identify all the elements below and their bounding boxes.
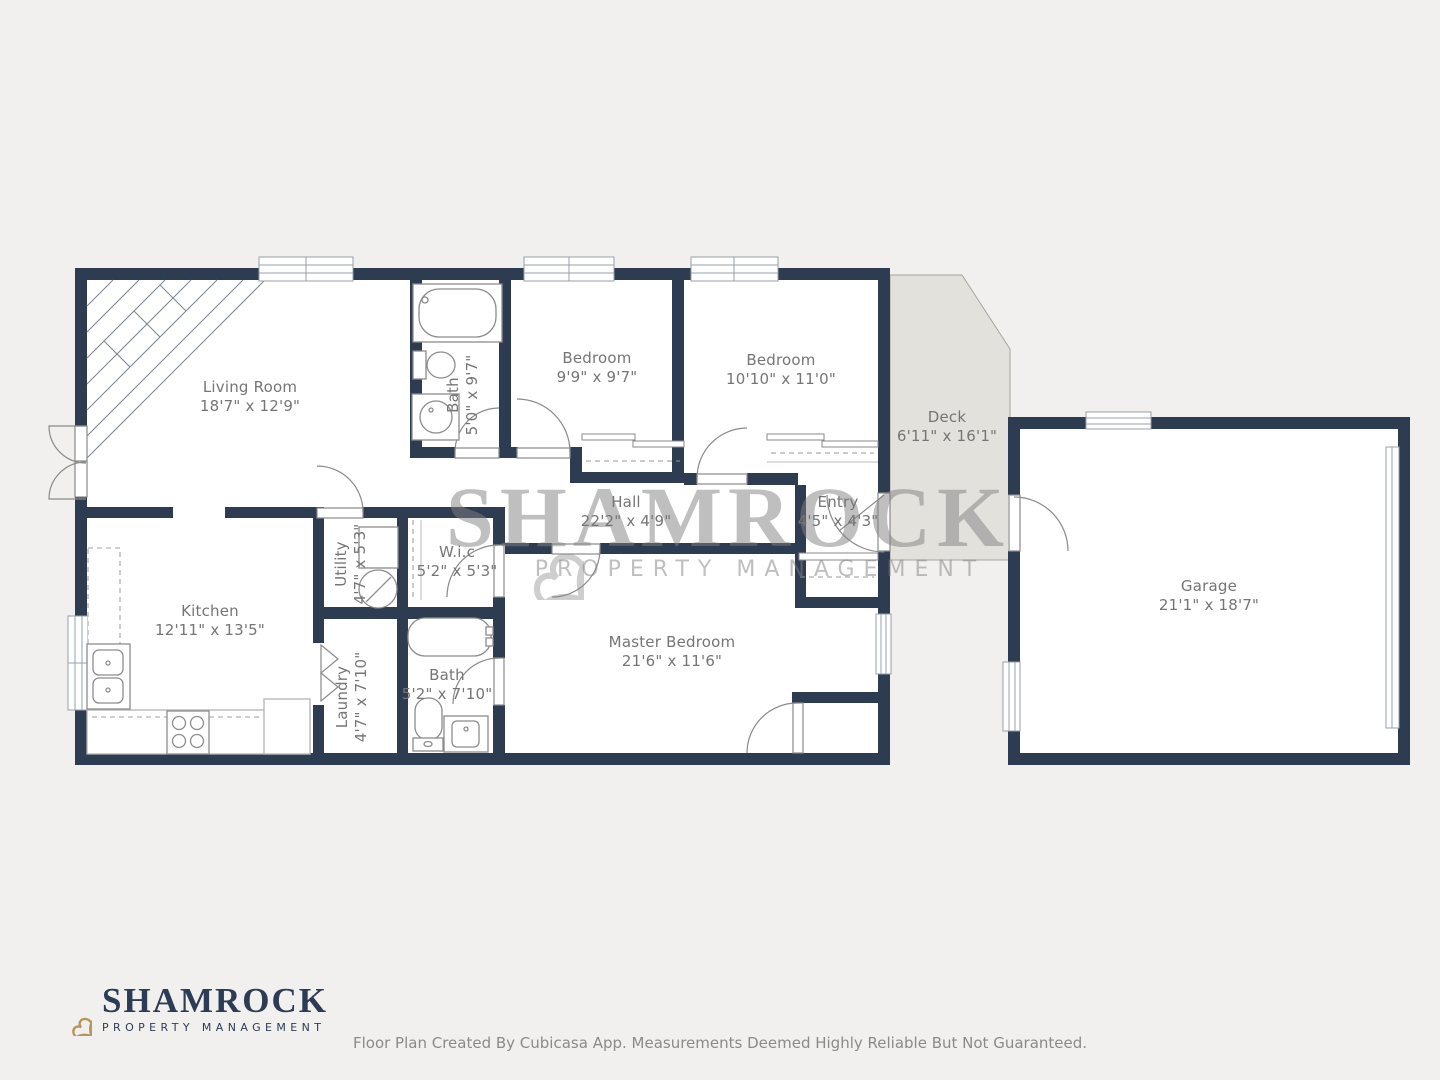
front-double-door <box>49 426 87 499</box>
room-name: Master Bedroom <box>609 633 736 652</box>
room-dims: 9'9" x 9'7" <box>557 368 638 387</box>
company-logo: SHAMROCK PROPERTY MANAGEMENT <box>40 982 328 1036</box>
room-label-master-bedroom: Master Bedroom 21'6" x 11'6" <box>609 633 736 671</box>
garage-door <box>1386 447 1399 728</box>
room-dims: 10'10" x 11'0" <box>726 370 836 389</box>
kitchen-sink <box>87 644 130 709</box>
room-dims: 5'2" x 5'3" <box>417 562 498 581</box>
room-label-wic: W.i.c 5'2" x 5'3" <box>417 543 498 581</box>
room-label-deck: Deck 6'11" x 16'1" <box>897 408 997 446</box>
garage-top-window <box>1086 412 1151 429</box>
living-room-window <box>259 257 353 281</box>
room-label-laundry: Laundry 4'7" x 7'10" <box>333 652 371 743</box>
room-dims: 21'6" x 11'6" <box>609 652 736 671</box>
room-name: Bedroom <box>726 351 836 370</box>
room-name: Bath <box>402 666 493 685</box>
room-name: Garage <box>1159 577 1259 596</box>
room-label-entry: Entry 4'5" x 4'3" <box>798 493 879 531</box>
room-label-bedroom-2: Bedroom 10'10" x 11'0" <box>726 351 836 389</box>
bedroom2-window <box>691 257 778 281</box>
logo-title: SHAMROCK <box>102 984 328 1018</box>
room-dims: 4'7" x 7'10" <box>352 652 371 743</box>
logo-subtitle: PROPERTY MANAGEMENT <box>102 1021 328 1034</box>
room-name: Hall <box>581 493 672 512</box>
room-name: Bath <box>444 355 463 436</box>
room-dims: 6'11" x 16'1" <box>897 427 997 446</box>
bedroom1-window <box>524 257 614 281</box>
room-dims: 12'11" x 13'5" <box>155 621 265 640</box>
bath-lower-tub <box>408 618 493 656</box>
room-label-hall: Hall 22'2" x 4'9" <box>581 493 672 531</box>
watermark-subtitle: PROPERTY MANAGEMENT <box>535 557 985 582</box>
room-name: Laundry <box>333 652 352 743</box>
room-dims: 4'7" x 5'3" <box>351 524 370 605</box>
room-label-garage: Garage 21'1" x 18'7" <box>1159 577 1259 615</box>
room-dims: 18'7" x 12'9" <box>200 397 300 416</box>
room-label-utility: Utility 4'7" x 5'3" <box>332 524 370 605</box>
room-name: W.i.c <box>417 543 498 562</box>
room-name: Living Room <box>200 378 300 397</box>
room-label-bedroom-1: Bedroom 9'9" x 9'7" <box>557 349 638 387</box>
room-dims: 5'2" x 7'10" <box>402 685 493 704</box>
footer-disclaimer: Floor Plan Created By Cubicasa App. Meas… <box>353 1034 1087 1052</box>
logo-shamrock-icon <box>40 982 92 1036</box>
room-label-bath-upper: Bath 5'0" x 9'7" <box>444 355 482 436</box>
kitchen-stove <box>167 711 209 754</box>
room-name: Kitchen <box>155 602 265 621</box>
bath-lower-sink <box>444 716 488 752</box>
bath-lower-toilet <box>413 698 443 751</box>
room-label-kitchen: Kitchen 12'11" x 13'5" <box>155 602 265 640</box>
room-name: Entry <box>798 493 879 512</box>
logo-text: SHAMROCK PROPERTY MANAGEMENT <box>102 984 328 1034</box>
garage-side-window <box>1003 662 1020 731</box>
master-window <box>876 614 891 674</box>
floor-plan-page: SHAMROCK PROPERTY MANAGEMENT Living Room… <box>0 0 1440 1080</box>
room-dims: 22'2" x 4'9" <box>581 512 672 531</box>
room-dims: 21'1" x 18'7" <box>1159 596 1259 615</box>
room-label-living-room: Living Room 18'7" x 12'9" <box>200 378 300 416</box>
room-dims: 5'0" x 9'7" <box>463 355 482 436</box>
room-name: Bedroom <box>557 349 638 368</box>
bath-upper-tub <box>413 284 502 342</box>
kitchen-window <box>68 616 88 710</box>
room-dims: 4'5" x 4'3" <box>798 512 879 531</box>
watermark-title: SHAMROCK <box>446 474 1010 560</box>
room-name: Deck <box>897 408 997 427</box>
room-name: Utility <box>332 524 351 605</box>
room-label-bath-lower: Bath 5'2" x 7'10" <box>402 666 493 704</box>
